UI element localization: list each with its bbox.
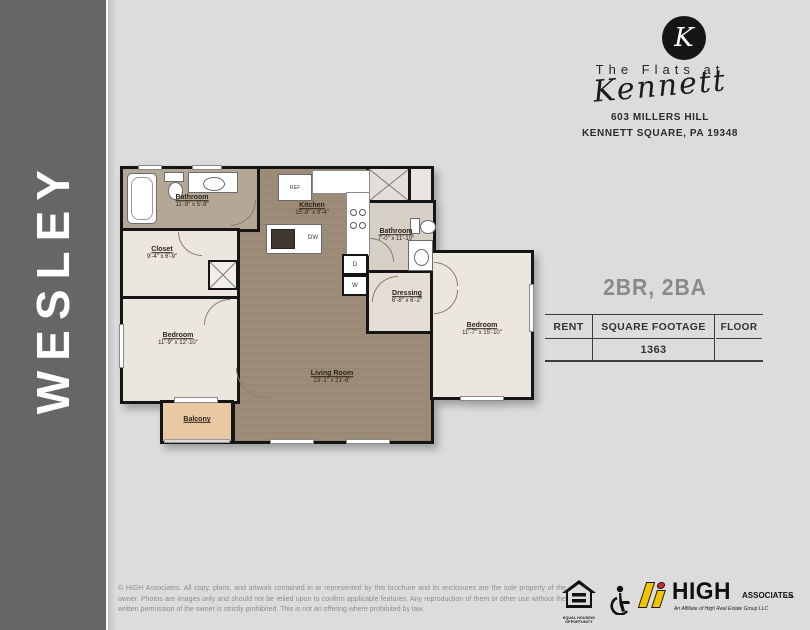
brochure-page: { "sidebar": { "plan_name": "WESLEY" }, … [0,0,810,630]
high-bar-icon [651,590,666,608]
label-dressing: Dressing 6'-8" x 6'-2" [392,290,422,306]
dishwasher-label: DW [308,235,318,241]
label-kitchen: Kitchen 15'-8" x 9'-4" [295,202,329,218]
address-line-2: KENNETT SQUARE, PA 19348 [545,126,775,142]
brand-address: 603 MILLERS HILL KENNETT SQUARE, PA 1934… [545,110,775,142]
unit-config-heading: 2BR, 2BA [549,274,761,301]
shower-x-icon [369,169,409,201]
column-header-rent: RENT [545,315,593,339]
room-shower [366,166,412,204]
washer: W [342,275,368,296]
label-bathroom-2: Bathroom 7'-0" x 11'-10" [378,228,414,244]
label-bathroom-1: Bathroom 11'-9" x 5'-8" [175,194,208,210]
footer-logos: EQUAL HOUSING OPPORTUNITY HIGH ASSOCIATE… [558,578,788,623]
balcony-sliding-door [174,397,218,403]
window [138,165,162,170]
label-balcony: Balcony [183,416,210,424]
high-tagline: An Affiliate of High Real Estate Group L… [674,606,768,612]
burner-icon [359,222,366,229]
plan-name-sidebar: WESLEY [0,0,108,630]
floor-value [716,339,762,360]
kitchen-island: DW [266,224,322,254]
label-bedroom-1: Bedroom 11'-9" x 12'-10" [158,332,198,348]
kitchen-counter-top [312,170,370,194]
address-line-1: 603 MILLERS HILL [545,110,775,126]
refrigerator: REF [278,174,312,201]
window [119,324,124,368]
balcony-railing [164,439,230,443]
high-wordmark: HIGH [672,578,731,606]
equal-housing-icon [562,580,596,610]
kitchen-sink [271,229,295,249]
bathtub [127,173,157,224]
square-footage-value: 1363 [593,339,715,360]
vanity-sink-1 [188,172,238,193]
window [460,396,504,401]
unit-details-table: RENT SQUARE FOOTAGE FLOOR 1363 [545,314,763,362]
brand-monogram-icon: K [662,16,706,60]
closet-x-icon [210,262,236,288]
high-dot-icon [656,582,665,589]
column-header-square-footage: SQUARE FOOTAGE [593,315,715,339]
floor-plan: REF DW D W Bathroom 11'-9" x 5'-8" [120,166,534,444]
burner-icon [359,209,366,216]
room-hall-closet [408,166,434,204]
high-mark-icon [640,582,670,608]
high-ltd-text: LTD. [786,594,795,599]
window [192,165,222,170]
entry-closet [208,260,238,290]
label-bedroom-2: Bedroom 11'-7" x 15'-10" [462,322,502,338]
accessible-icon [608,585,634,620]
equal-housing-label: EQUAL HOUSING OPPORTUNITY [558,616,600,624]
equal-housing-logo: EQUAL HOUSING OPPORTUNITY [558,580,600,624]
column-header-floor: FLOOR [716,315,762,339]
stove [349,208,367,234]
window [346,439,390,444]
plan-name-label: WESLEY [26,160,80,414]
label-closet: Closet 9'-4" x 6'-9" [147,246,177,262]
vanity-sink-2 [408,240,433,271]
window [529,284,534,332]
brand-block: K The Flats at Kennett 603 MILLERS HILL … [545,16,775,142]
disclaimer-text: © HIGH Associates. All copy, plans, and … [118,584,566,616]
rent-value [545,339,593,360]
toilet-1 [164,172,184,182]
label-living-room: Living Room 23'-1" x 21'-6" [311,370,353,386]
burner-icon [350,222,357,229]
dryer: D [342,254,368,275]
burner-icon [350,209,357,216]
window [270,439,314,444]
